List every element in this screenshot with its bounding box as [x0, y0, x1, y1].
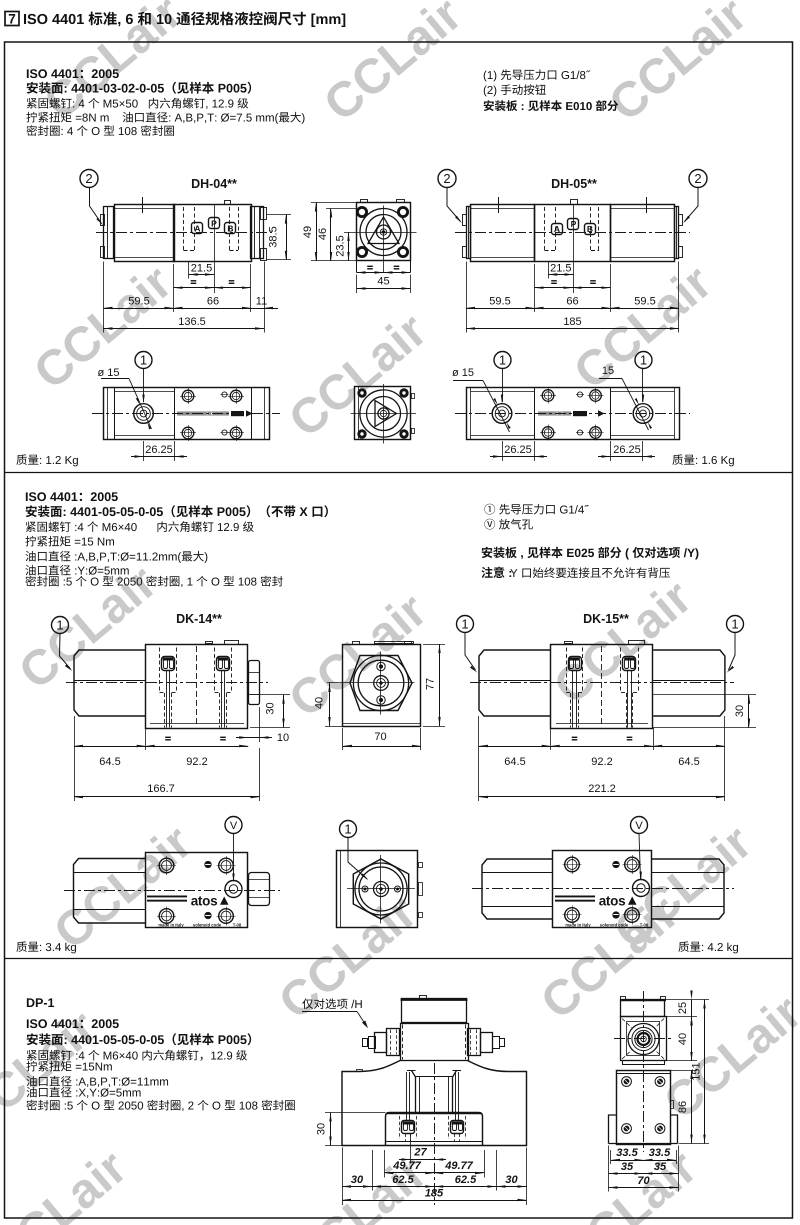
svg-text:26.25: 26.25 — [145, 444, 173, 456]
svg-text:26.25: 26.25 — [504, 444, 532, 456]
svg-text:92.2: 92.2 — [186, 756, 207, 768]
svg-text:62.5: 62.5 — [455, 1174, 477, 1186]
svg-text:70: 70 — [374, 731, 386, 743]
svg-text:185: 185 — [425, 1188, 444, 1200]
svg-text:21.5: 21.5 — [191, 263, 212, 275]
svg-text:1: 1 — [499, 353, 506, 368]
svg-text:49.77: 49.77 — [444, 1160, 473, 1172]
svg-text:62.5: 62.5 — [392, 1174, 414, 1186]
svg-text:33.5: 33.5 — [616, 1147, 638, 1159]
svg-text:1: 1 — [461, 617, 468, 632]
svg-text:DK-14**: DK-14** — [176, 612, 222, 626]
svg-text:30: 30 — [316, 1123, 328, 1135]
svg-text:77: 77 — [425, 678, 437, 690]
svg-text:21.5: 21.5 — [550, 263, 571, 275]
svg-text:59.5: 59.5 — [128, 296, 149, 308]
svg-text:atos: atos — [191, 894, 218, 909]
svg-text:DH-04**: DH-04** — [191, 177, 237, 191]
svg-text:T-08: T-08 — [640, 923, 649, 928]
svg-text:49: 49 — [302, 226, 314, 238]
svg-text:64.5: 64.5 — [678, 756, 699, 768]
svg-text:CCLair: CCLair — [599, 0, 757, 132]
svg-text:7: 7 — [8, 12, 16, 27]
svg-text:DK-15**: DK-15** — [583, 612, 629, 626]
svg-text:T-08: T-08 — [233, 923, 242, 928]
svg-text:66: 66 — [566, 296, 578, 308]
svg-text:46: 46 — [317, 228, 329, 240]
svg-text:23.5: 23.5 — [335, 235, 347, 256]
svg-text:38.5: 38.5 — [268, 226, 280, 247]
svg-text:59.5: 59.5 — [489, 296, 510, 308]
svg-text:P: P — [211, 219, 217, 229]
svg-text:27: 27 — [413, 1147, 427, 1159]
svg-text:10: 10 — [277, 732, 289, 744]
svg-text:V: V — [635, 820, 643, 832]
svg-text:11: 11 — [256, 296, 267, 308]
svg-text:45: 45 — [377, 276, 389, 288]
svg-text:15: 15 — [602, 365, 614, 377]
svg-text:86: 86 — [677, 1101, 689, 1113]
svg-text:30: 30 — [351, 1174, 364, 1186]
svg-text:solenoid code: solenoid code — [193, 923, 222, 928]
svg-text:ø 15: ø 15 — [452, 367, 474, 379]
svg-text:136.5: 136.5 — [178, 316, 206, 328]
svg-text:185: 185 — [563, 316, 581, 328]
svg-text:solenoid code: solenoid code — [600, 923, 629, 928]
svg-text:30: 30 — [505, 1174, 518, 1186]
svg-text:made in Italy: made in Italy — [158, 923, 184, 928]
svg-text:151: 151 — [691, 1062, 703, 1080]
svg-text:49.77: 49.77 — [392, 1160, 421, 1172]
svg-text:CCLair: CCLair — [279, 303, 437, 448]
svg-text:59.5: 59.5 — [634, 296, 655, 308]
svg-text:35: 35 — [621, 1161, 634, 1173]
svg-text:66: 66 — [207, 296, 219, 308]
svg-text:40: 40 — [677, 1033, 689, 1045]
svg-text:64.5: 64.5 — [99, 756, 120, 768]
svg-text:221.2: 221.2 — [588, 783, 616, 795]
svg-text:1: 1 — [344, 822, 351, 837]
svg-text:40: 40 — [314, 697, 326, 709]
svg-text:CCLair: CCLair — [44, 815, 202, 960]
svg-text:2: 2 — [694, 171, 701, 186]
svg-text:CCLair: CCLair — [564, 255, 722, 400]
svg-text:2: 2 — [443, 171, 450, 186]
svg-text:CCLair: CCLair — [0, 1140, 137, 1225]
svg-text:1: 1 — [640, 353, 647, 368]
svg-text:64.5: 64.5 — [504, 756, 525, 768]
svg-text:25: 25 — [677, 1002, 689, 1014]
svg-text:V: V — [230, 820, 238, 832]
svg-text:1: 1 — [56, 618, 63, 633]
svg-text:2: 2 — [85, 171, 92, 186]
svg-text:DH-05**: DH-05** — [551, 177, 597, 191]
svg-text:CCLair: CCLair — [314, 0, 472, 132]
svg-text:CCLair: CCLair — [544, 570, 702, 715]
svg-text:70: 70 — [637, 1175, 650, 1187]
svg-text:30: 30 — [265, 702, 277, 714]
svg-text:166.7: 166.7 — [147, 783, 175, 795]
svg-text:1: 1 — [731, 617, 738, 632]
svg-text:35: 35 — [654, 1161, 667, 1173]
svg-text:atos: atos — [599, 894, 626, 909]
svg-text:33.5: 33.5 — [649, 1147, 671, 1159]
svg-text:ø 15: ø 15 — [97, 367, 119, 379]
svg-text:30: 30 — [734, 705, 746, 717]
svg-text:92.2: 92.2 — [591, 756, 612, 768]
svg-text:26.25: 26.25 — [613, 444, 641, 456]
svg-text:1: 1 — [140, 353, 147, 368]
svg-text:made in Italy: made in Italy — [565, 923, 591, 928]
svg-text:P: P — [571, 219, 577, 229]
